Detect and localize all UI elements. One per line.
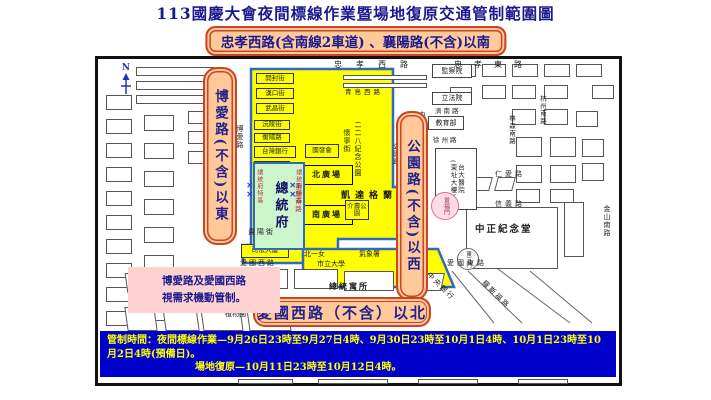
north-label: N: [122, 63, 130, 73]
map-label: 愛國東路: [447, 259, 487, 267]
map-label: 金山南路: [603, 205, 611, 237]
building-block: [544, 85, 568, 99]
map-label: ✕✕: [288, 181, 297, 199]
map-label: 貴陽街: [248, 228, 275, 236]
building-block: [482, 85, 506, 99]
map-label: 國發會: [305, 144, 339, 158]
map-label: 青島西路: [345, 89, 383, 96]
building-block: [343, 75, 427, 80]
building-block: [106, 143, 132, 158]
building-block: [106, 191, 132, 206]
building-block: [144, 143, 174, 159]
building-block: [512, 85, 536, 99]
north-arrow: N: [120, 63, 132, 95]
map-label: 忠孝西路: [334, 60, 422, 69]
map-label: 北一女: [304, 250, 325, 258]
map-label: ✕✕: [245, 181, 254, 199]
building-block: [576, 111, 598, 127]
diagonal-roads: [452, 269, 592, 323]
building-block: [582, 163, 604, 181]
map-frame: N 博愛路(不含)以東 公園路(不含)以西 愛國西路（不含）以北 博愛路及愛國西…: [95, 56, 622, 386]
building-block: [418, 379, 478, 384]
building-block: [106, 167, 132, 182]
east-boundary-label: 博愛路(不含)以東: [203, 67, 237, 245]
building-block: [516, 137, 542, 157]
subtitle-text: 忠孝西路(含南線2車道) 、襄陽路(不含)以南: [221, 35, 490, 51]
map-label: 中正紀念堂: [475, 225, 533, 236]
building-block: [564, 202, 584, 257]
building-block: [592, 85, 614, 99]
page-title: 113國慶大會夜間標線作業暨場地復原交通管制範圍圖: [0, 2, 711, 24]
building-block: [512, 109, 536, 125]
map-label: 仁愛路: [495, 170, 525, 178]
north-arrow-icon: [120, 73, 132, 95]
building-block: [106, 119, 132, 134]
building-block: [106, 239, 132, 254]
building-block: [136, 67, 214, 76]
building-block: [544, 109, 568, 125]
map-label: 北廣場: [301, 165, 353, 185]
control-boundary-north-banner: 忠孝西路(含南線2車道) 、襄陽路(不含)以南: [205, 26, 506, 56]
control-time-line1: 管制時間：夜間標線作業—9月26日23時至9月27日4時、9月30日23時至10…: [107, 334, 609, 361]
map-label: 景福門: [431, 192, 459, 220]
building-block: [144, 115, 174, 131]
map-label: 氣象署: [359, 250, 380, 258]
map-label: 總統寓所: [329, 282, 369, 291]
building-block: [238, 379, 293, 384]
building-block: [144, 199, 174, 215]
building-block: [544, 64, 570, 77]
building-block: [318, 379, 388, 384]
map-label: 教育部: [428, 116, 464, 130]
map-label: 武昌街: [256, 103, 294, 114]
map-label: 杭州南路: [538, 95, 545, 125]
map-label: 徐州路: [433, 137, 459, 144]
map-label: 濟南路: [435, 108, 461, 115]
map-label: 二二八紀念公園: [354, 121, 362, 239]
building-block: [144, 227, 174, 243]
map-label: 漢口街: [256, 88, 294, 99]
building-block: [550, 137, 576, 157]
map-label: 衡陽路: [254, 133, 290, 143]
map-label: 立法院: [432, 92, 472, 105]
building-block: [576, 64, 602, 77]
flexible-control-note: 博愛路及愛國西路 視需求機動管制。: [128, 267, 280, 313]
map-label: 總統府特區: [255, 169, 262, 204]
map-label: 忠孝東路: [454, 60, 534, 69]
map-label: 林森南路: [507, 115, 514, 145]
map-label: 懷寧街: [343, 129, 351, 153]
building-block: [582, 139, 604, 157]
building-block: [106, 95, 132, 110]
map-label: 博愛路: [236, 125, 244, 149]
building-block: [494, 177, 516, 191]
building-block: [550, 189, 574, 203]
map-label: 愛國西路: [240, 259, 276, 267]
building-block: [550, 165, 576, 183]
west-boundary-label: 公園路(不含)以西: [396, 111, 428, 301]
map-label: 沅陵街: [254, 120, 290, 130]
control-time-banner: 管制時間：夜間標線作業—9月26日23時至9月27日4時、9月30日23時至10…: [100, 331, 616, 377]
map-label: 開封街: [256, 73, 294, 84]
map-label: 信義路: [495, 200, 525, 208]
building-block: [518, 379, 568, 384]
traffic-control-map-page: { "title": "113國慶大會夜間標線作業暨場地復原交通管制範圍圖", …: [0, 0, 711, 400]
map-label: 台灣銀行: [254, 146, 296, 158]
building-block: [106, 215, 132, 230]
building-block: [144, 171, 174, 187]
control-time-line2: 場地復原—10月11日23時至10月12日4時。: [195, 361, 609, 375]
map-label: 市立大學: [317, 260, 345, 268]
